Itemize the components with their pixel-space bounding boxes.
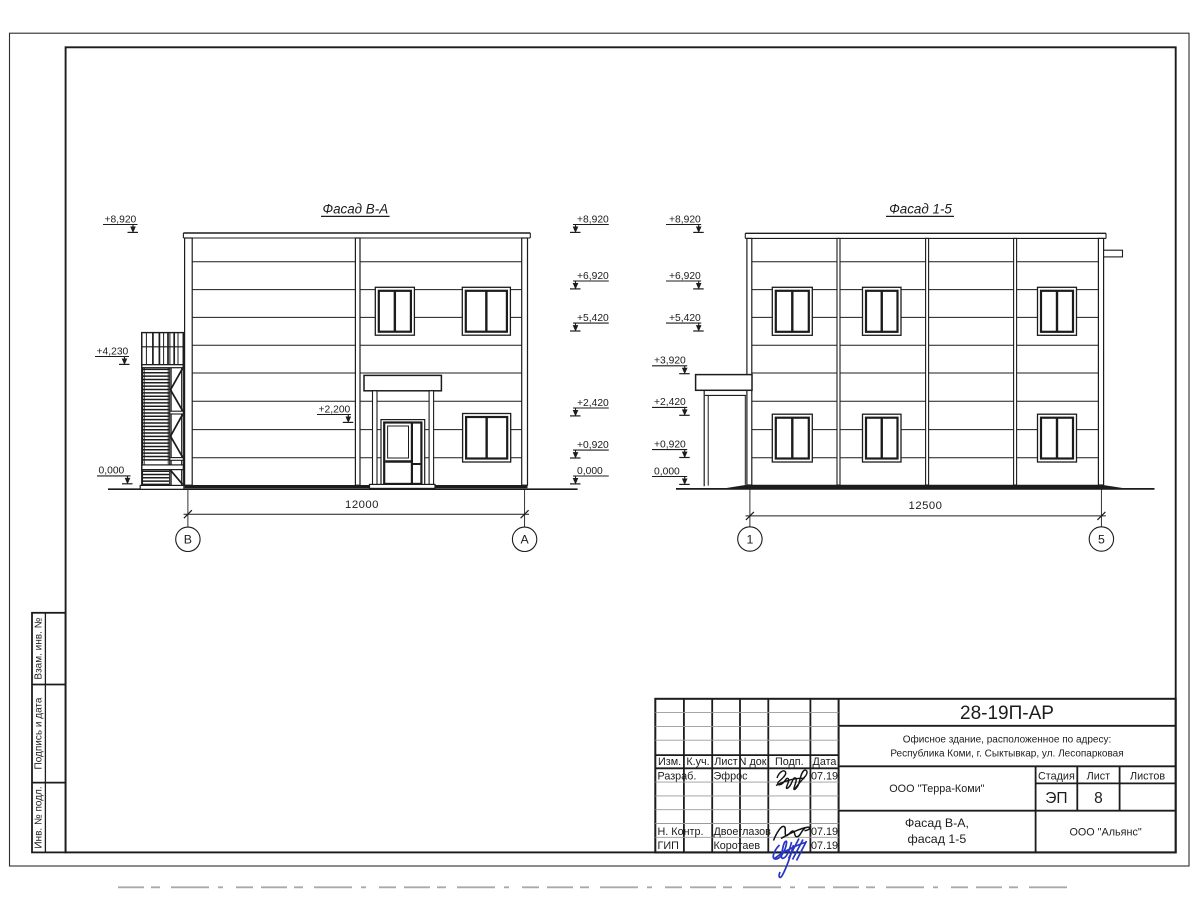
svg-text:07.19: 07.19	[811, 840, 838, 852]
svg-text:+3,920: +3,920	[654, 356, 686, 367]
svg-text:В: В	[184, 533, 192, 547]
svg-text:0,000: 0,000	[577, 466, 603, 477]
svg-text:07.19: 07.19	[811, 771, 838, 783]
svg-text:Фасад В-А: Фасад В-А	[322, 202, 388, 217]
svg-text:Фасад В-А,: Фасад В-А,	[905, 816, 969, 830]
svg-text:Разраб.: Разраб.	[658, 771, 697, 783]
svg-text:Н. Контр.: Н. Контр.	[658, 826, 704, 838]
svg-text:Коротаев: Коротаев	[714, 840, 761, 852]
svg-text:+2,200: +2,200	[319, 404, 351, 415]
svg-text:1: 1	[746, 532, 753, 546]
svg-text:Листов: Листов	[1130, 771, 1165, 783]
svg-text:ООО "Терра-Коми": ООО "Терра-Коми"	[889, 783, 984, 795]
svg-text:28-19П-АР: 28-19П-АР	[960, 703, 1054, 724]
svg-text:К.уч.: К.уч.	[686, 756, 709, 768]
svg-text:Республика Коми, г. Сыктывкар,: Республика Коми, г. Сыктывкар, ул. Лесоп…	[890, 747, 1123, 759]
svg-text:Лист: Лист	[1087, 771, 1111, 783]
svg-text:Изм.: Изм.	[658, 756, 681, 768]
svg-text:+2,420: +2,420	[577, 398, 609, 409]
svg-text:Дата: Дата	[813, 756, 837, 768]
svg-text:Стадия: Стадия	[1038, 771, 1075, 783]
svg-text:+8,920: +8,920	[105, 214, 137, 225]
svg-text:Лист: Лист	[714, 756, 738, 768]
svg-text:Фасад 1-5: Фасад 1-5	[889, 202, 952, 217]
svg-text:0,000: 0,000	[99, 466, 125, 477]
svg-text:12000: 12000	[345, 499, 379, 511]
svg-text:0,000: 0,000	[654, 466, 680, 477]
svg-text:+8,920: +8,920	[577, 214, 609, 225]
svg-text:+2,420: +2,420	[654, 397, 686, 408]
svg-text:5: 5	[1098, 532, 1105, 546]
svg-text:Подпись и дата: Подпись и дата	[34, 697, 45, 769]
svg-text:07.19: 07.19	[811, 826, 838, 838]
svg-text:12500: 12500	[909, 500, 943, 512]
svg-text:ЭП: ЭП	[1045, 790, 1067, 807]
svg-text:+6,920: +6,920	[577, 271, 609, 282]
svg-text:Взам. инв. №: Взам. инв. №	[34, 617, 45, 679]
svg-text:+5,420: +5,420	[577, 313, 609, 324]
svg-text:+5,420: +5,420	[669, 313, 701, 324]
svg-text:фасад 1-5: фасад 1-5	[908, 832, 967, 846]
svg-text:N док.: N док.	[739, 756, 770, 768]
svg-text:ООО "Альянс": ООО "Альянс"	[1069, 826, 1141, 838]
svg-text:+0,920: +0,920	[654, 439, 686, 450]
svg-text:А: А	[520, 533, 529, 547]
svg-text:Двоеглазов: Двоеглазов	[714, 826, 772, 838]
svg-text:Офисное здание, расположенное: Офисное здание, расположенное по адресу:	[903, 734, 1112, 746]
svg-text:ГИП: ГИП	[658, 840, 679, 852]
svg-text:Эфрос: Эфрос	[714, 771, 749, 783]
svg-text:Инв. № подл.: Инв. № подл.	[34, 786, 45, 848]
svg-text:Подп.: Подп.	[775, 756, 804, 768]
svg-text:+6,920: +6,920	[669, 271, 701, 282]
svg-text:+0,920: +0,920	[577, 440, 609, 451]
svg-text:+4,230: +4,230	[97, 346, 129, 357]
svg-text:8: 8	[1094, 790, 1103, 807]
svg-text:+8,920: +8,920	[669, 214, 701, 225]
